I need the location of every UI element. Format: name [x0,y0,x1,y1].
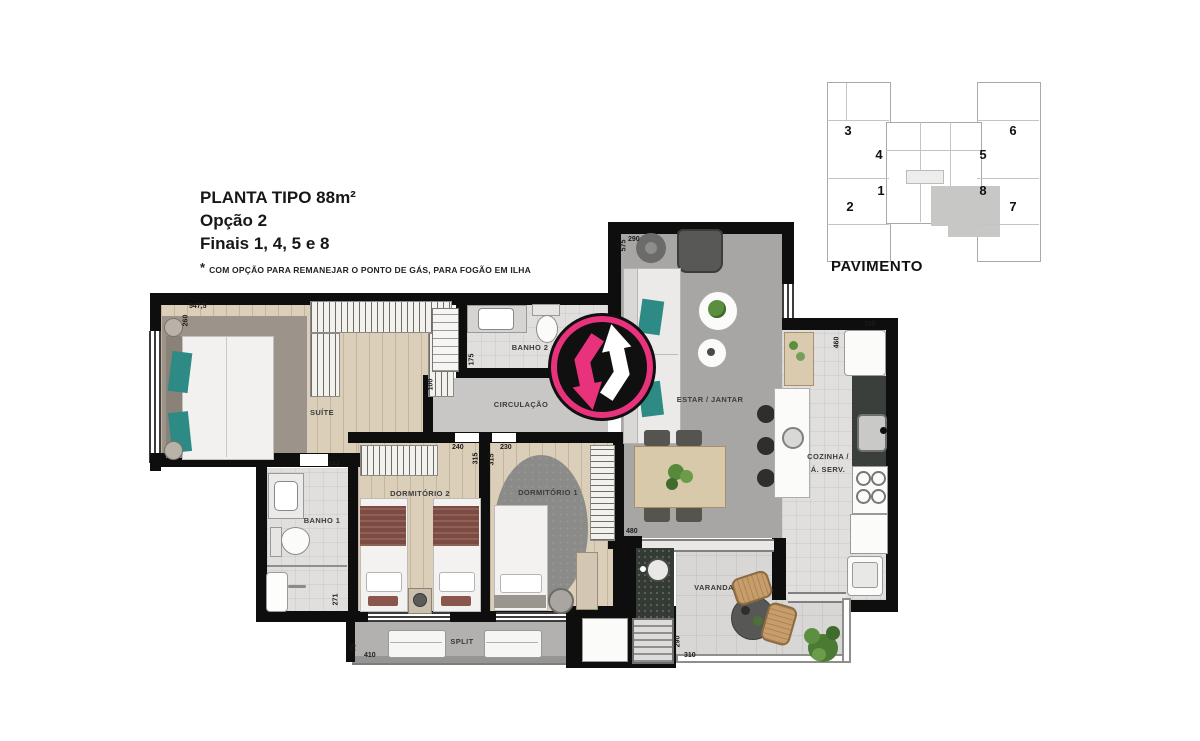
nightstand [164,441,183,460]
bed-blanket [360,506,406,546]
logo-disc [548,313,656,421]
wall [772,538,786,600]
key-plan-highlight-notch [948,224,1000,237]
key-plan-core-lobby [906,170,944,184]
door-opening [300,454,328,466]
lamp [413,593,427,607]
plant [804,628,820,644]
key-plan-unit-7: 7 [1006,199,1020,214]
shaft-box [582,618,628,662]
grill-knob [640,566,646,572]
dining-chair [644,506,670,522]
wall [346,622,355,662]
key-plan-line [827,178,889,179]
room-label-cozinha: COZINHA / [802,452,854,461]
stool [757,469,775,487]
dim-suite-width: 547,5 [189,303,207,310]
key-plan-line [846,83,847,121]
key-plan-line [977,120,1039,121]
desk [576,552,598,610]
pillow [500,574,542,593]
key-plan-unit-8: 8 [976,183,990,198]
plant [708,300,726,318]
wall [782,318,898,330]
dim-dorm1-height: 315 [488,454,495,466]
dim-varanda-width: 310 [684,652,696,659]
round-ottoman-center [645,242,657,254]
key-plan-unit-4: 4 [872,147,886,162]
room-label-split: SPLIT [437,637,487,646]
bed-blanket [433,506,479,546]
faucet [880,427,887,434]
nightstand [164,318,183,337]
plan-option: Opção 2 [200,209,356,232]
island-sink [782,427,804,449]
pillow [366,572,402,592]
varanda-railing [842,598,851,663]
dim-varanda-height: 290 [674,636,681,648]
key-plan-line [950,122,951,186]
dining-chair [676,430,702,446]
decor [707,348,715,356]
dining-chair [676,506,702,522]
burner [856,471,871,486]
ac-condenser-line [486,642,538,643]
footnote-text: COM OPÇÃO PARA REMANEJAR O PONTO DE GÁS,… [209,265,531,275]
dim-estar-height: 575 [620,240,627,252]
key-plan-unit-5: 5 [976,147,990,162]
bed-headboard [494,595,546,608]
dim-dorm2-height: 315 [472,453,479,465]
pouf [548,588,574,614]
room-label-dorm1: DORMITÓRIO 1 [498,488,598,497]
centerpiece-plant [666,478,678,490]
double-bed [182,336,274,460]
window [496,612,566,622]
wardrobe [310,301,452,333]
grill [646,558,670,582]
room-label-estar: ESTAR / JANTAR [660,395,760,404]
dim-dorm1-width: 230 [500,444,512,451]
cabinet [850,514,888,554]
plan-finals: Finais 1, 4, 5 e 8 [200,232,356,255]
wardrobe [310,333,340,397]
linen-shelves [432,308,459,372]
plant [826,626,840,640]
key-plan-unit-6: 6 [1006,123,1020,138]
dim-banho2-height: 175 [468,354,475,366]
dim-estar-bottom: 480 [626,528,638,535]
burner [856,489,871,504]
window [149,331,161,463]
dim-circ-height: 100 [427,379,434,391]
room-label-dorm2: DORMITÓRIO 2 [370,489,470,498]
decor-plant [796,352,805,361]
key-plan-unit-2: 2 [843,199,857,214]
wardrobe [360,445,438,476]
asterisk: * [200,260,205,275]
vent-louver [632,618,674,664]
burner [871,489,886,504]
dim-dorm2-width: 240 [452,444,464,451]
tableware [741,606,750,615]
key-plan-line [977,178,1039,179]
wall [782,222,794,284]
burner [871,471,886,486]
footnote: *COM OPÇÃO PARA REMANEJAR O PONTO DE GÁS… [200,260,531,278]
shower-tray [266,572,288,612]
room-label-varanda: VARANDA [679,583,749,592]
ac-condenser-line [390,642,442,643]
tableware [753,616,763,626]
key-plan-unit-1: 1 [874,183,888,198]
room-label-banho1: BANHO 1 [292,516,352,525]
dim-split-width: 410 [364,652,376,659]
dim-split-height: 75 [350,644,357,652]
pillow-small [441,596,471,606]
dim-cozinha-height: 460 [833,337,840,349]
laundry-tank-basin [852,562,878,588]
key-plan-line [886,150,980,151]
floor-plan-page: PLANTA TIPO 88m² Opção 2 Finais 1, 4, 5 … [0,0,1200,741]
door-opening [455,433,479,442]
watermark-logo [542,307,662,427]
armchair [677,229,723,273]
dining-chair [644,430,670,446]
key-plan-line [827,120,889,121]
sink [478,308,514,330]
pillow-small [368,596,398,606]
wall [150,293,161,335]
bed-center-line [226,337,227,457]
key-plan-line [977,224,1039,225]
shower-partition [267,565,347,567]
room-label-aserv: Á. SERV. [802,465,854,474]
key-plan-line [827,224,889,225]
stool [757,405,775,423]
service-sill [788,592,846,603]
dim-banho1-width: 143 [328,461,340,468]
centerpiece-plant [680,470,693,483]
wall [886,318,898,612]
wall [348,461,358,622]
title-block: PLANTA TIPO 88m² Opção 2 Finais 1, 4, 5 … [200,186,356,255]
key-plan-title: PAVIMENTO [831,258,923,275]
dim-cozinha-width: 165 [864,321,876,328]
room-label-suite: SUÍTE [292,408,352,417]
decor-plant [789,341,798,350]
wall [846,600,898,612]
door-opening [492,433,516,442]
dim-banho1-height: 271 [332,594,339,606]
dim-suite-height: 260 [182,315,189,327]
pillow [439,572,475,592]
dim-estar-width: 290 [628,236,640,243]
key-plan-left-wing [827,82,891,262]
plant [812,648,826,661]
stool [757,437,775,455]
shower-arm [288,585,306,588]
page-title: PLANTA TIPO 88m² [200,186,356,209]
fridge [844,330,886,376]
window [782,284,794,320]
key-plan-unit-3: 3 [841,123,855,138]
ac-condenser [484,630,542,658]
sink [274,481,298,511]
